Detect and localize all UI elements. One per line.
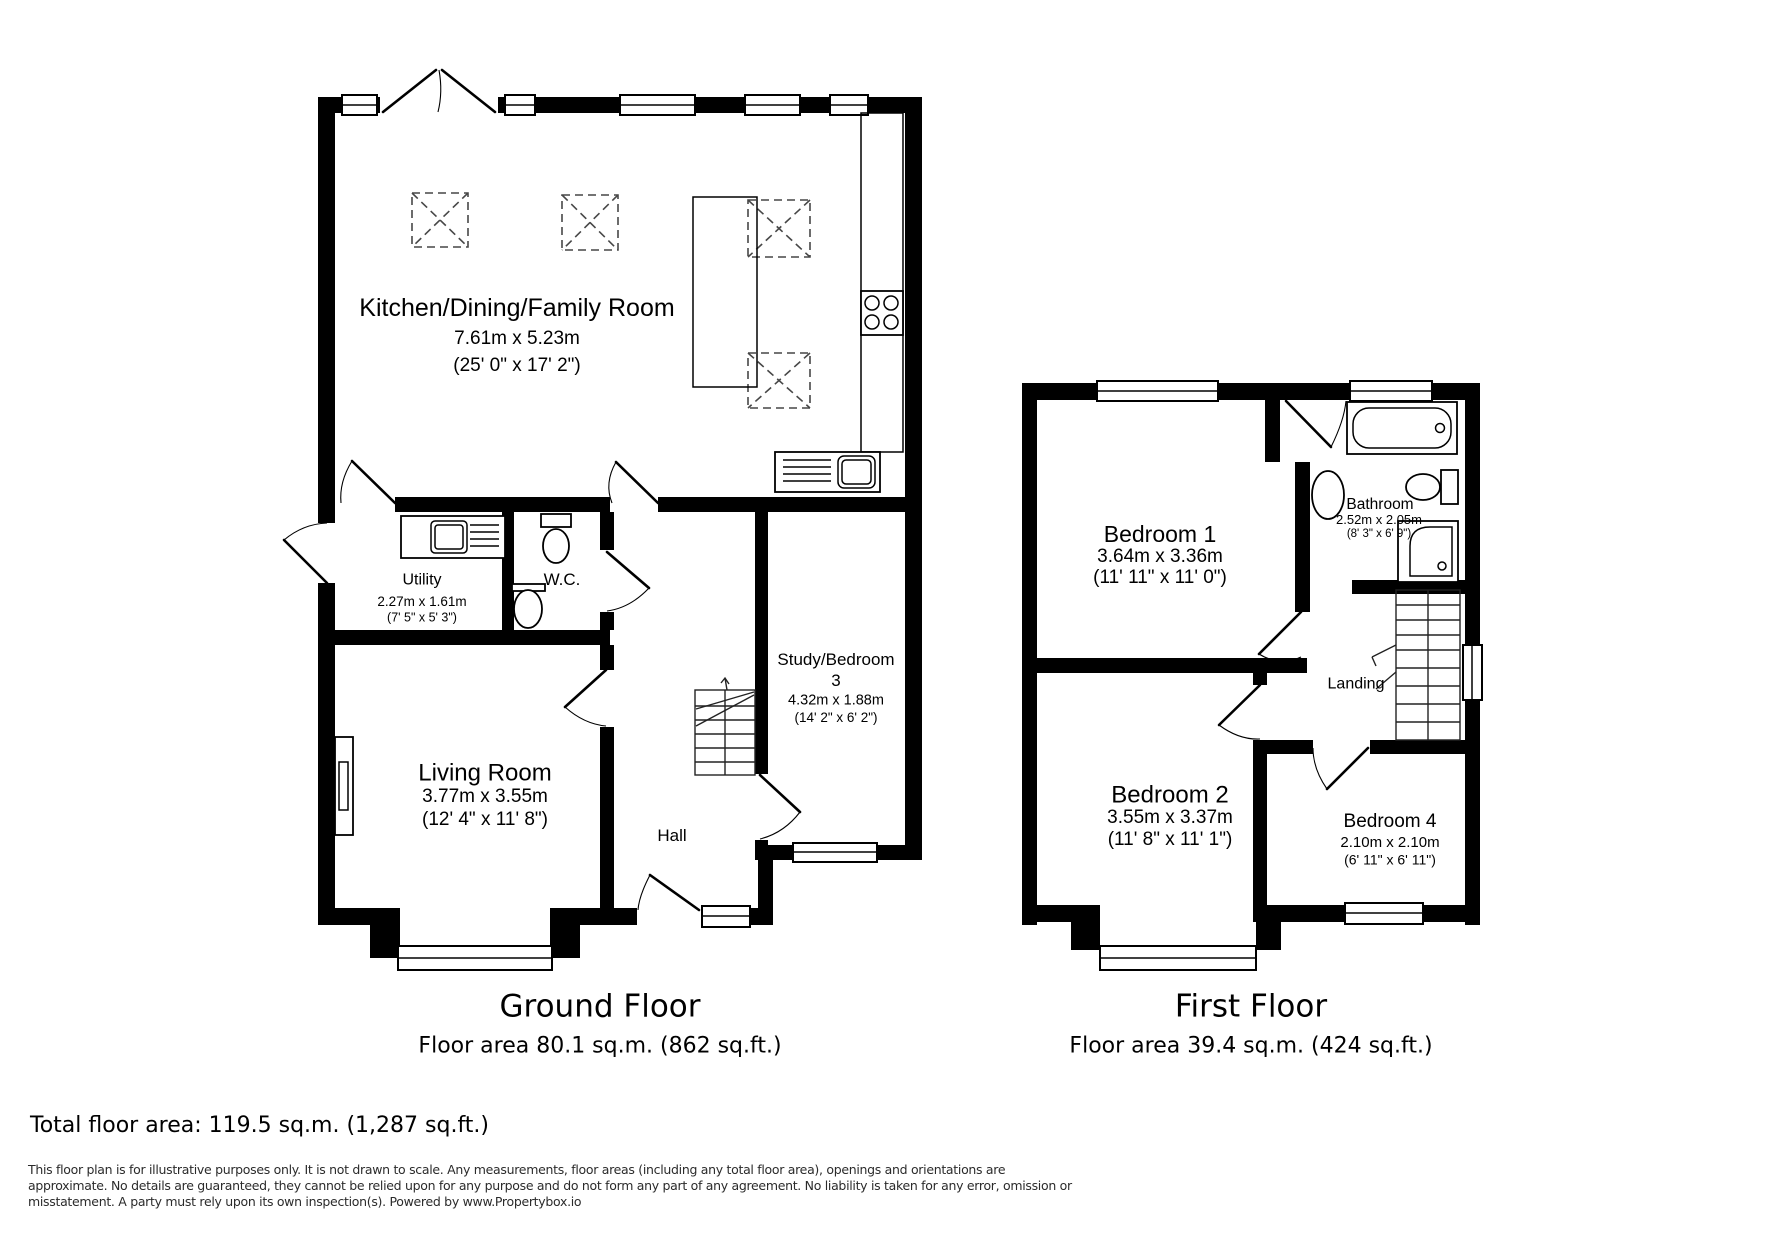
first-floor-stairs-icon xyxy=(1372,590,1460,740)
ground-stairs-icon xyxy=(695,678,755,775)
floor-plan-drawing xyxy=(0,0,1771,1239)
bedroom4-metric: 2.10m x 2.10m xyxy=(1340,835,1439,851)
utility-imperial: (7' 5" x 5' 3") xyxy=(387,611,457,624)
hall-label: Hall xyxy=(657,827,686,845)
ground-floor-title: Ground Floor xyxy=(499,991,700,1024)
bathroom-metric: 2.52m x 2.05m xyxy=(1336,513,1422,527)
fireplace-icon xyxy=(335,737,353,835)
bathroom-label: Bathroom xyxy=(1346,497,1413,513)
landing-label: Landing xyxy=(1328,677,1385,694)
study-number: 3 xyxy=(831,672,840,690)
kitchen-sink-icon xyxy=(775,452,880,492)
living-room-label: Living Room xyxy=(418,760,551,785)
bedroom1-label: Bedroom 1 xyxy=(1104,522,1217,546)
disclaimer-line-3: misstatement. A party must rely upon its… xyxy=(28,1194,581,1209)
kitchen-imperial: (25' 0" x 17' 2") xyxy=(453,356,580,376)
utility-label: Utility xyxy=(402,573,441,590)
living-room-imperial: (12' 4" x 11' 8") xyxy=(422,810,548,830)
utility-sink-icon xyxy=(401,516,505,558)
total-floor-area: Total floor area: 119.5 sq.m. (1,287 sq.… xyxy=(30,1113,489,1138)
ground-floor-area: Floor area 80.1 sq.m. (862 sq.ft.) xyxy=(418,1034,781,1057)
bathroom-imperial: (8' 3" x 6' 9") xyxy=(1347,528,1411,540)
first-floor-doors xyxy=(1219,401,1368,789)
first-floor-title: First Floor xyxy=(1175,991,1327,1024)
study-imperial: (14' 2" x 6' 2") xyxy=(794,711,877,725)
wc-basin-icon xyxy=(512,584,545,628)
french-doors-icon xyxy=(383,70,495,112)
hob-icon xyxy=(861,291,903,335)
kitchen-counter-icon xyxy=(861,113,903,452)
bathroom-toilet-icon xyxy=(1406,470,1458,504)
utility-metric: 2.27m x 1.61m xyxy=(377,595,466,609)
bedroom4-label: Bedroom 4 xyxy=(1344,812,1437,832)
wc-label: W.C. xyxy=(544,571,581,589)
living-room-metric: 3.77m x 3.55m xyxy=(422,787,548,807)
bedroom1-metric: 3.64m x 3.36m xyxy=(1097,547,1223,567)
bath-icon xyxy=(1347,402,1457,454)
kitchen-metric: 7.61m x 5.23m xyxy=(454,329,580,349)
disclaimer-line-2: approximate. No details are guaranteed, … xyxy=(28,1178,1072,1193)
first-floor-windows xyxy=(1097,381,1482,970)
bedroom2-imperial: (11' 8" x 11' 1") xyxy=(1108,830,1233,850)
ground-floor-plan xyxy=(284,70,922,970)
first-floor-plan xyxy=(1022,381,1482,970)
kitchen-label: Kitchen/Dining/Family Room xyxy=(359,295,674,321)
floor-plan-page: Kitchen/Dining/Family Room 7.61m x 5.23m… xyxy=(0,0,1771,1239)
bedroom2-metric: 3.55m x 3.37m xyxy=(1107,808,1233,828)
ground-floor-doors xyxy=(284,461,800,910)
bedroom4-imperial: (6' 11" x 6' 11") xyxy=(1344,853,1436,868)
disclaimer-line-1: This floor plan is for illustrative purp… xyxy=(28,1162,1005,1177)
study-metric: 4.32m x 1.88m xyxy=(788,693,884,708)
first-floor-area: Floor area 39.4 sq.m. (424 sq.ft.) xyxy=(1069,1034,1432,1057)
wc-toilet-icon xyxy=(541,514,571,563)
study-label: Study/Bedroom xyxy=(777,651,894,669)
bedroom1-imperial: (11' 11" x 11' 0") xyxy=(1093,568,1227,588)
bedroom2-label: Bedroom 2 xyxy=(1111,782,1228,807)
